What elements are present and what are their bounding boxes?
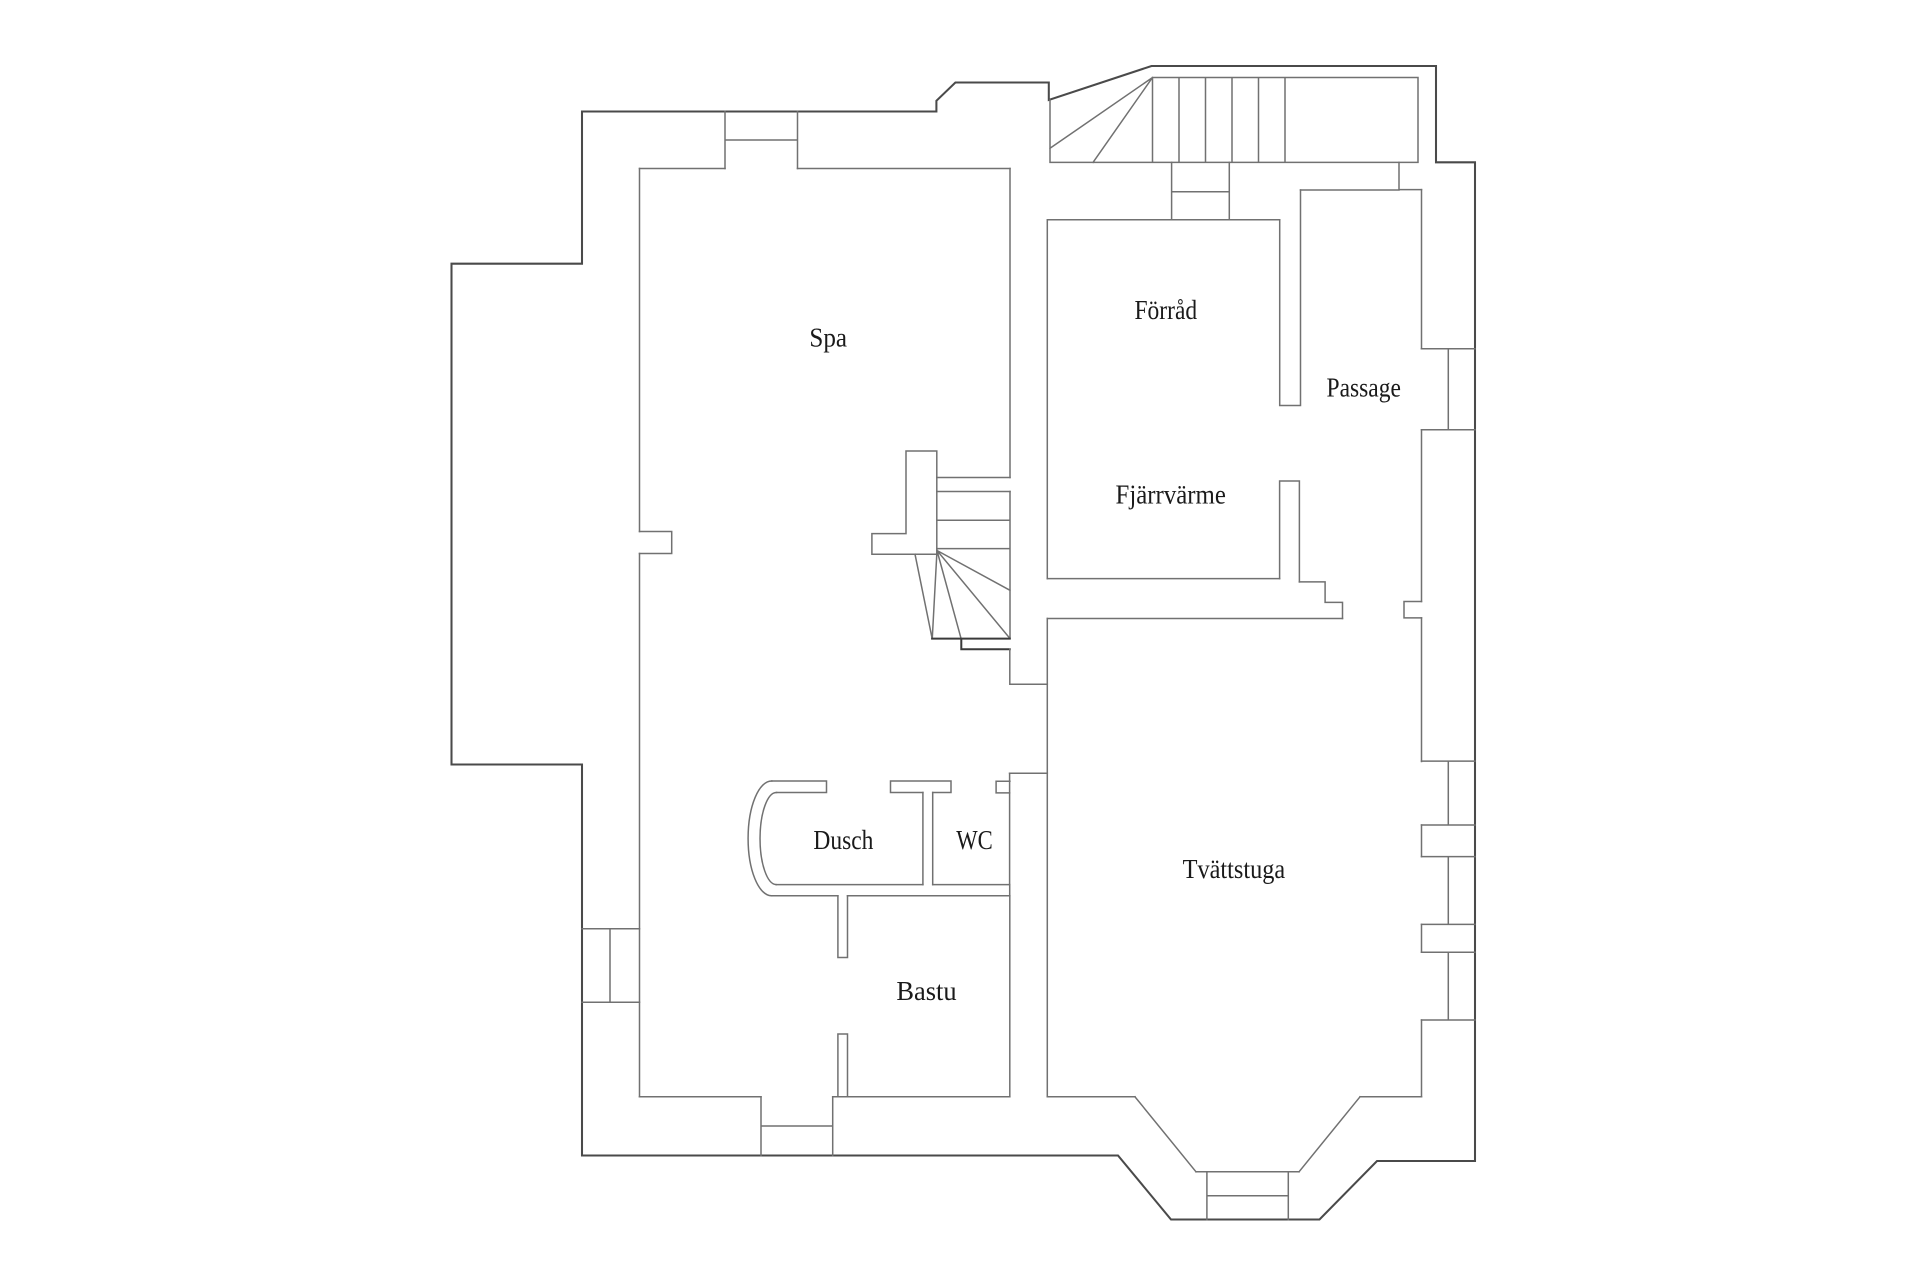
svg-text:Spa: Spa	[809, 323, 847, 353]
svg-text:Fjärrvärme: Fjärrvärme	[1116, 480, 1226, 510]
svg-text:Tvättstuga: Tvättstuga	[1183, 854, 1286, 884]
svg-text:WC: WC	[956, 826, 993, 855]
svg-text:Bastu: Bastu	[896, 976, 956, 1006]
svg-text:Förråd: Förråd	[1134, 295, 1197, 325]
svg-text:Dusch: Dusch	[813, 825, 873, 855]
svg-text:Passage: Passage	[1327, 373, 1401, 403]
